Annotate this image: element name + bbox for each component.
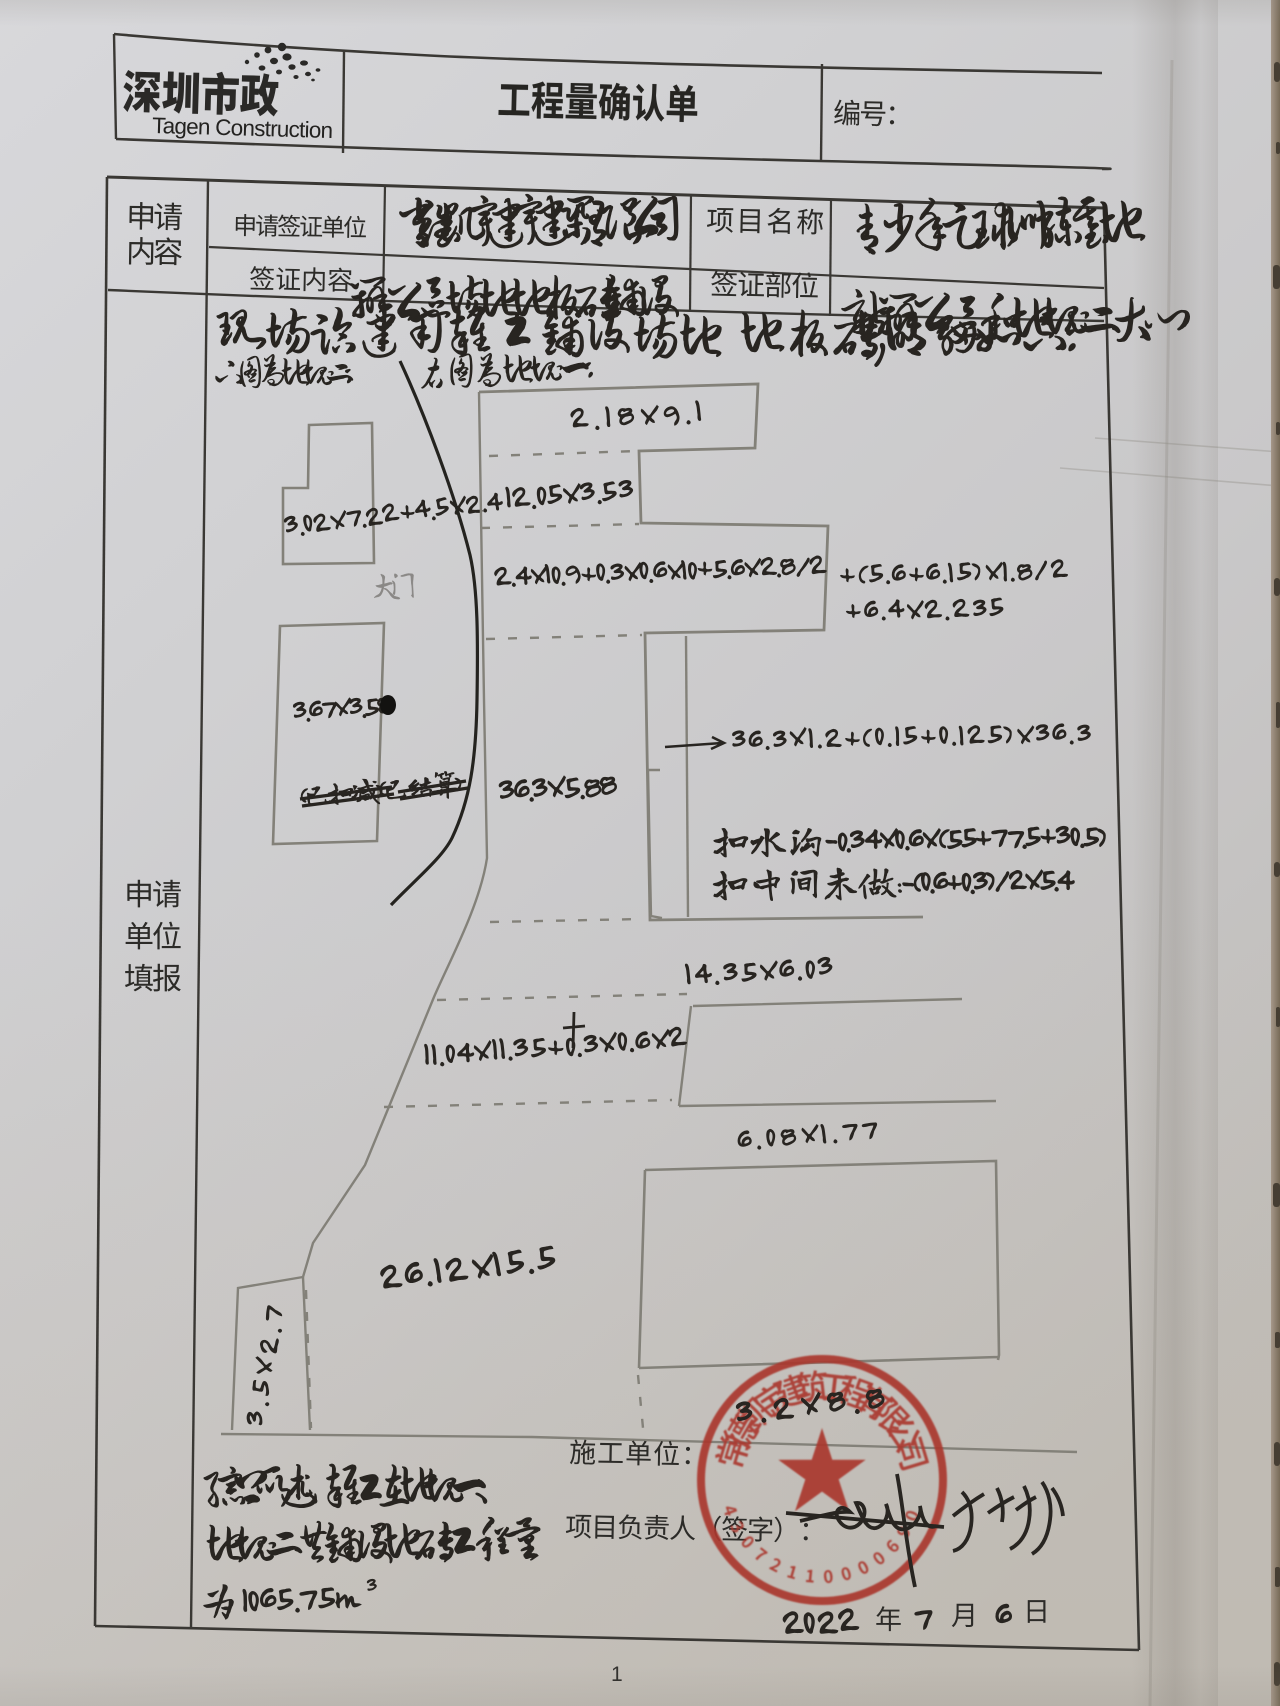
svg-text:Tagen Construction: Tagen Construction bbox=[152, 113, 334, 143]
svg-text:1: 1 bbox=[611, 1663, 623, 1686]
